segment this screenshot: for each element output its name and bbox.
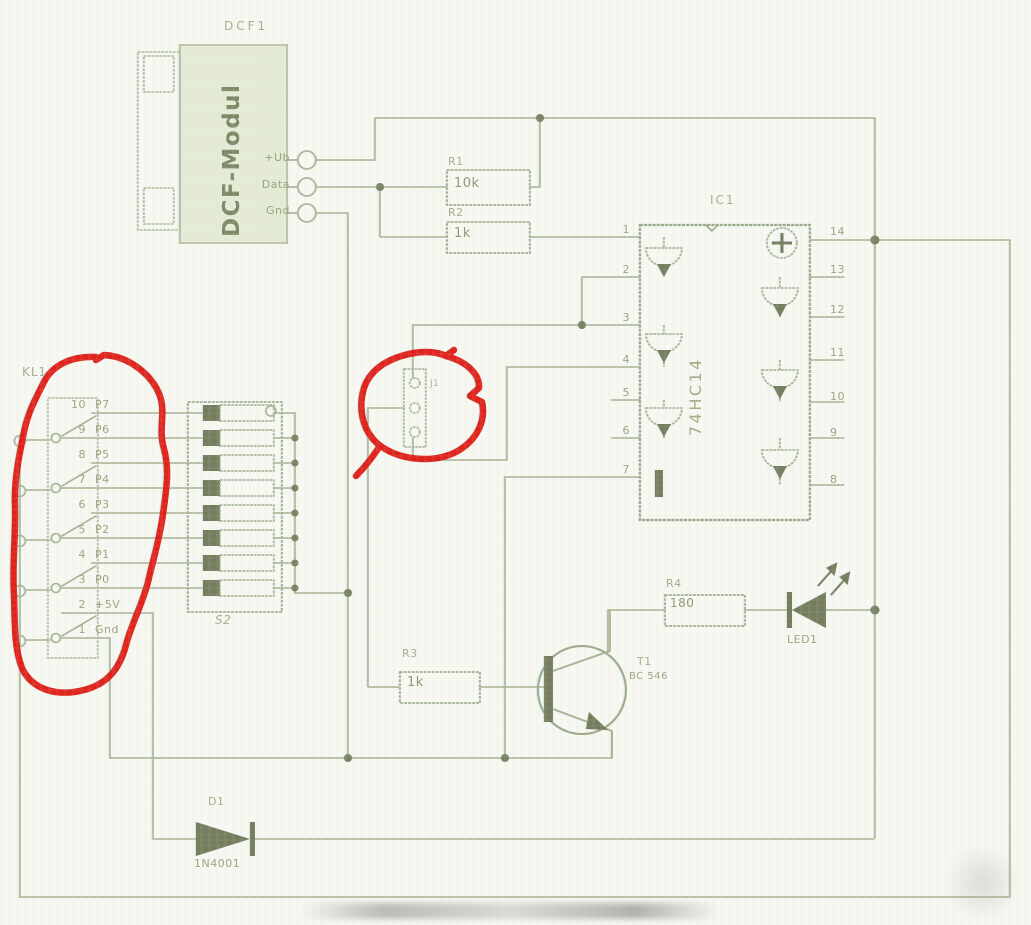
ic1-symbol	[640, 225, 810, 520]
dcf-pin-gnd-terminal	[298, 204, 316, 222]
gate-output-triangles	[657, 264, 787, 479]
wire-kl1-gnd	[62, 638, 110, 758]
jumper-ref: J1	[430, 380, 439, 389]
r3-value: 1k	[407, 676, 424, 689]
kl1-pin-10: 10	[64, 399, 86, 410]
r1-ref: R1	[448, 156, 464, 167]
kl1-label-p0: P0	[95, 574, 110, 585]
kl1-label-p7: P7	[95, 399, 110, 410]
ic1-pin-8: 8	[830, 474, 838, 485]
kl1-pin-6: 6	[64, 499, 86, 510]
r2-value: 1k	[454, 227, 471, 240]
kl1-label-p6: P6	[95, 424, 110, 435]
dcf-pin-label-data: Data	[240, 179, 290, 190]
r4-value: 180	[670, 597, 694, 609]
dcf-module-ref: DCF1	[224, 20, 268, 32]
dip-switch-ref: S2	[215, 614, 231, 626]
wire-r4-collector	[608, 610, 665, 652]
resistor-symbols	[400, 170, 745, 703]
kl1-pin-9: 9	[64, 424, 86, 435]
ic1-pin-3: 3	[604, 312, 630, 323]
dcf-pin-ub-terminal	[298, 151, 316, 169]
wire-bottom-rail	[20, 240, 1010, 897]
led1-ref: LED1	[787, 634, 818, 645]
wire-pin4-jumper	[413, 367, 640, 460]
wire-data-to-r2	[380, 187, 447, 237]
kl1-label-gnd: Gnd	[95, 624, 119, 635]
d1-ref: D1	[208, 796, 224, 807]
kl1-pin-4: 4	[64, 549, 86, 560]
wires	[20, 118, 1010, 897]
kl1-label-p2: P2	[95, 524, 110, 535]
kl1-pin-1: 1	[64, 624, 86, 635]
kl1-label-5v: +5V	[95, 599, 120, 610]
ic1-pin-2: 2	[604, 264, 630, 275]
red-annotation-kl1-circle	[13, 355, 167, 693]
ic1-pin-9: 9	[830, 427, 838, 438]
dcf-pin-data-terminal	[298, 178, 316, 196]
wire-kl1-5v	[62, 613, 196, 839]
ic1-ref: IC1	[710, 194, 736, 206]
base-bar	[544, 656, 553, 722]
vcc-symbol	[767, 228, 797, 258]
ic1-pin-5: 5	[604, 387, 630, 398]
ic1-pin-6: 6	[604, 425, 630, 436]
ic1-pin-1: 1	[604, 224, 630, 235]
ic1-pin-11: 11	[830, 347, 845, 358]
t1-part: BC 546	[629, 672, 668, 682]
kl1-pin-2: 2	[64, 599, 86, 610]
kl1-pin-3: 3	[64, 574, 86, 585]
r4-ref: R4	[666, 578, 682, 589]
kl1-label-p1: P1	[95, 549, 110, 560]
schematic-drawing	[0, 0, 1031, 925]
r3-ref: R3	[402, 648, 418, 659]
kl1-label-p5: P5	[95, 449, 110, 460]
kl1-pin-8: 8	[64, 449, 86, 460]
diode-symbol	[196, 822, 255, 856]
r1-value: 10k	[454, 177, 480, 190]
kl1-label-p4: P4	[95, 474, 110, 485]
ic1-pin-13: 13	[830, 264, 845, 275]
ic1-pin-4: 4	[604, 354, 630, 365]
schematic-scan: DCF1 DCF-Modul +Ub Data Gnd R1 10k R2 1k…	[0, 0, 1031, 925]
wire-dcf-gnd	[316, 213, 348, 758]
jumper-symbol	[404, 369, 426, 447]
kl1-ref: KL1	[22, 366, 47, 378]
led-symbol	[787, 564, 849, 628]
emitter-arrow	[586, 712, 608, 730]
kl1-pin-7: 7	[64, 474, 86, 485]
ic1-pin-7: 7	[604, 464, 630, 475]
red-annotation-j1-circle	[361, 350, 483, 459]
ic1-pin-10: 10	[830, 391, 845, 402]
kl1-pin-5: 5	[64, 524, 86, 535]
ic1-pin-12: 12	[830, 304, 845, 315]
wire-dip-bus	[274, 413, 348, 593]
dcf-pin-label-gnd: Gnd	[240, 205, 290, 216]
dip-switch-symbol	[188, 402, 282, 612]
kl1-label-p3: P3	[95, 499, 110, 510]
ic1-part-number: 74HC14	[686, 357, 705, 436]
transistor-symbol	[538, 610, 626, 758]
r2-ref: R2	[448, 207, 464, 218]
dcf-pin-label-ub: +Ub	[240, 152, 290, 163]
ic1-pin-14: 14	[830, 226, 845, 237]
t1-ref: T1	[637, 656, 652, 667]
gnd-bar	[655, 470, 663, 497]
wire-r1-riser	[530, 118, 540, 187]
d1-part: 1N4001	[194, 858, 240, 869]
